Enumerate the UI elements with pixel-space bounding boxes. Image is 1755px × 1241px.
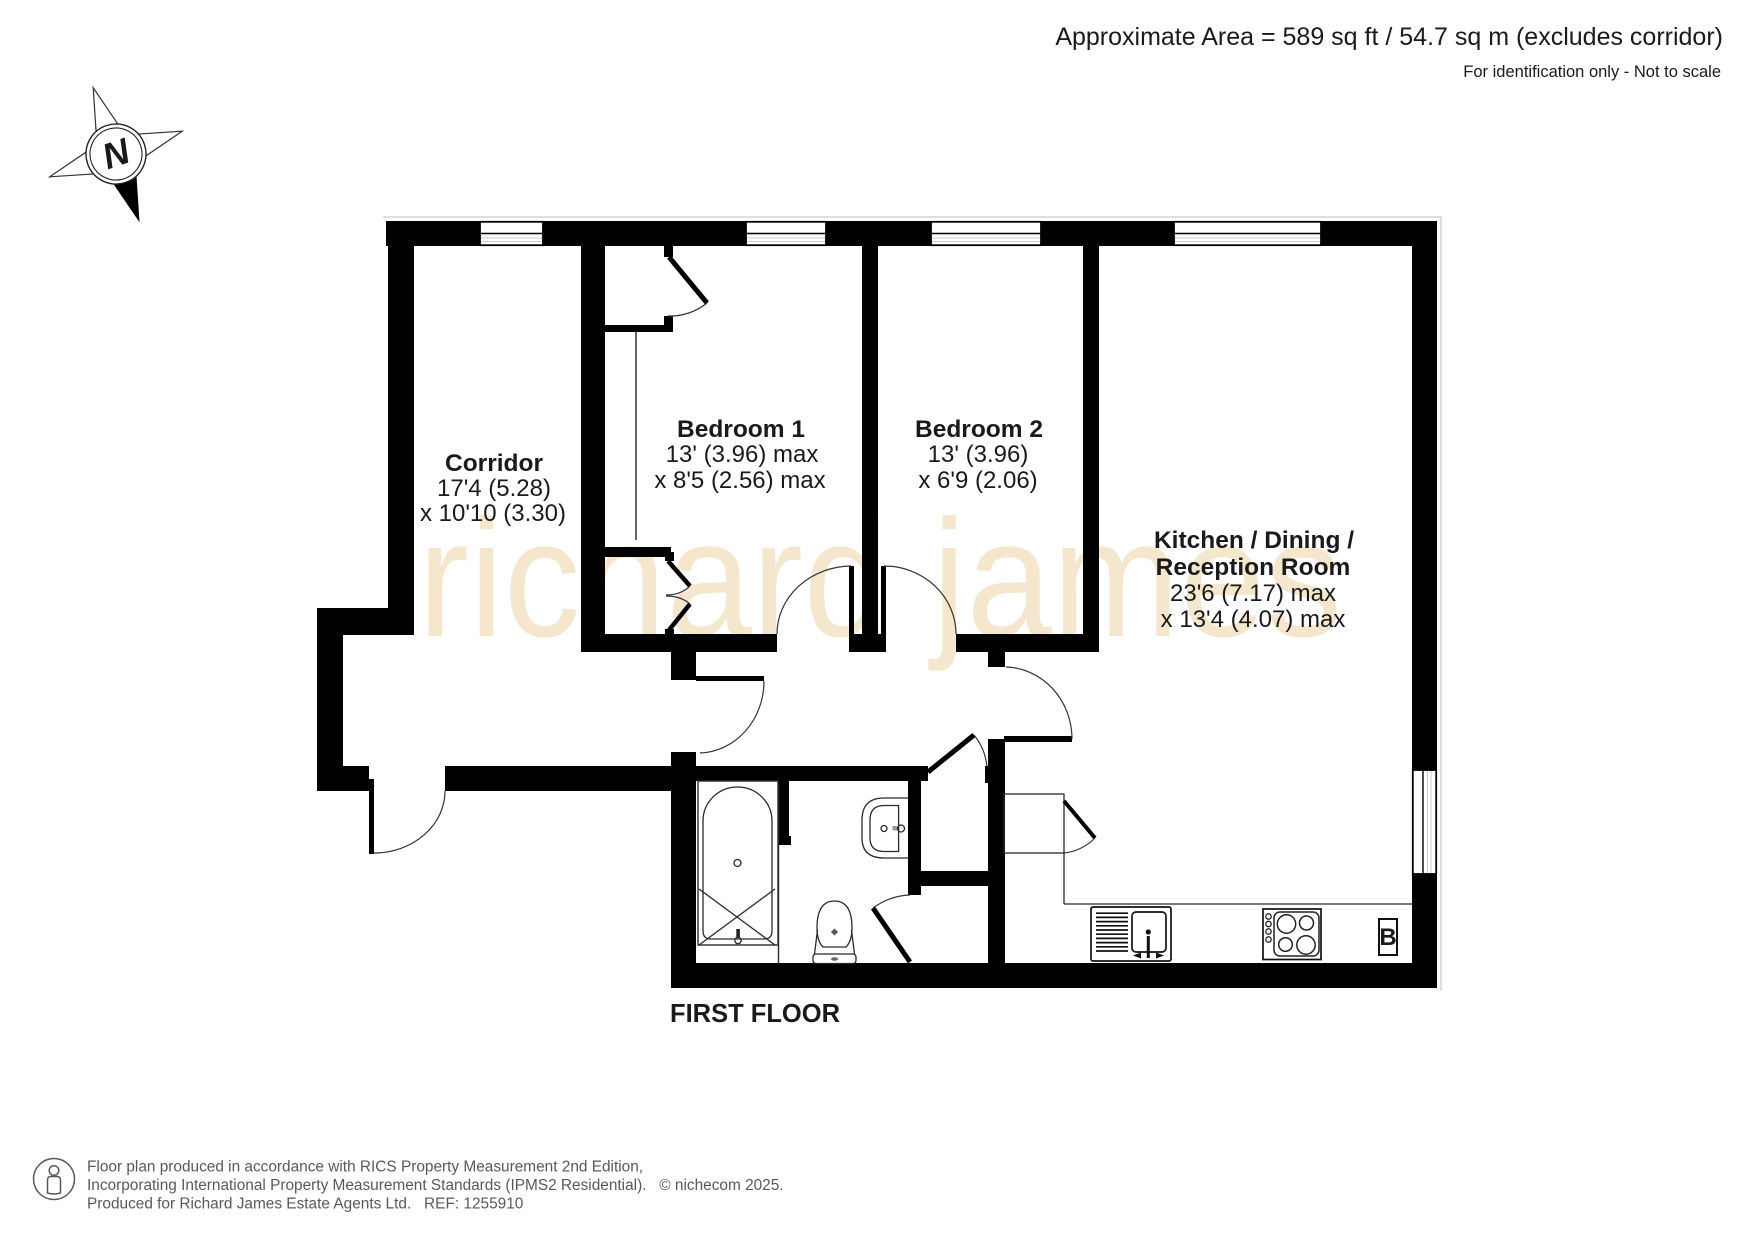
svg-text:B: B <box>1379 924 1396 951</box>
svg-text:Corridor: Corridor <box>445 450 543 477</box>
svg-text:Produced for Richard James Est: Produced for Richard James Estate Agents… <box>87 1196 523 1213</box>
svg-text:Reception Room: Reception Room <box>1156 554 1351 581</box>
svg-text:x 6'9 (2.06): x 6'9 (2.06) <box>918 467 1037 494</box>
svg-text:13' (3.96) max: 13' (3.96) max <box>666 441 819 468</box>
svg-text:x 8'5 (2.56) max: x 8'5 (2.56) max <box>654 467 825 494</box>
svg-text:Approximate Area = 589 sq ft /: Approximate Area = 589 sq ft / 54.7 sq m… <box>1055 23 1723 51</box>
svg-text:Floor plan produced in accorda: Floor plan produced in accordance with R… <box>87 1159 643 1176</box>
svg-text:x 10'10 (3.30): x 10'10 (3.30) <box>420 500 566 527</box>
svg-text:Bedroom 2: Bedroom 2 <box>915 416 1043 443</box>
svg-text:Incorporating International Pr: Incorporating International Property Mea… <box>87 1177 784 1194</box>
svg-text:FIRST FLOOR: FIRST FLOOR <box>670 1000 840 1028</box>
svg-text:13' (3.96): 13' (3.96) <box>928 441 1029 468</box>
svg-text:Bedroom 1: Bedroom 1 <box>677 416 805 443</box>
svg-text:Kitchen / Dining /: Kitchen / Dining / <box>1154 527 1354 554</box>
svg-text:17'4 (5.28): 17'4 (5.28) <box>437 475 551 502</box>
svg-text:For identification only - Not: For identification only - Not to scale <box>1463 63 1721 81</box>
svg-text:x 13'4 (4.07) max: x 13'4 (4.07) max <box>1161 606 1346 633</box>
svg-text:23'6 (7.17) max: 23'6 (7.17) max <box>1170 580 1336 607</box>
